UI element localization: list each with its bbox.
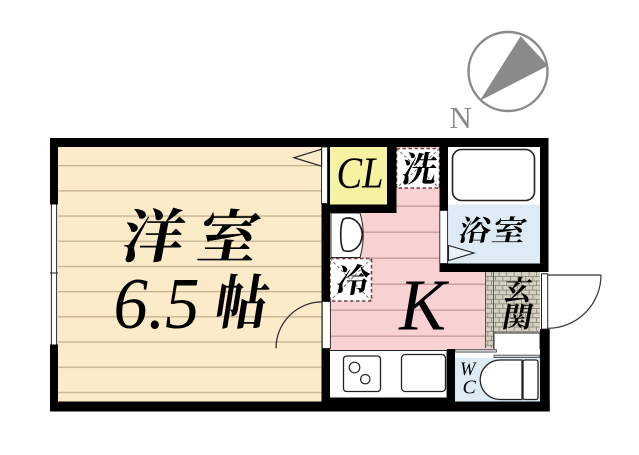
svg-text:CL: CL (337, 149, 384, 198)
svg-text:K: K (398, 265, 449, 346)
svg-text:C: C (463, 377, 477, 399)
svg-text:N: N (450, 100, 472, 135)
svg-text:6.5: 6.5 (114, 263, 200, 344)
